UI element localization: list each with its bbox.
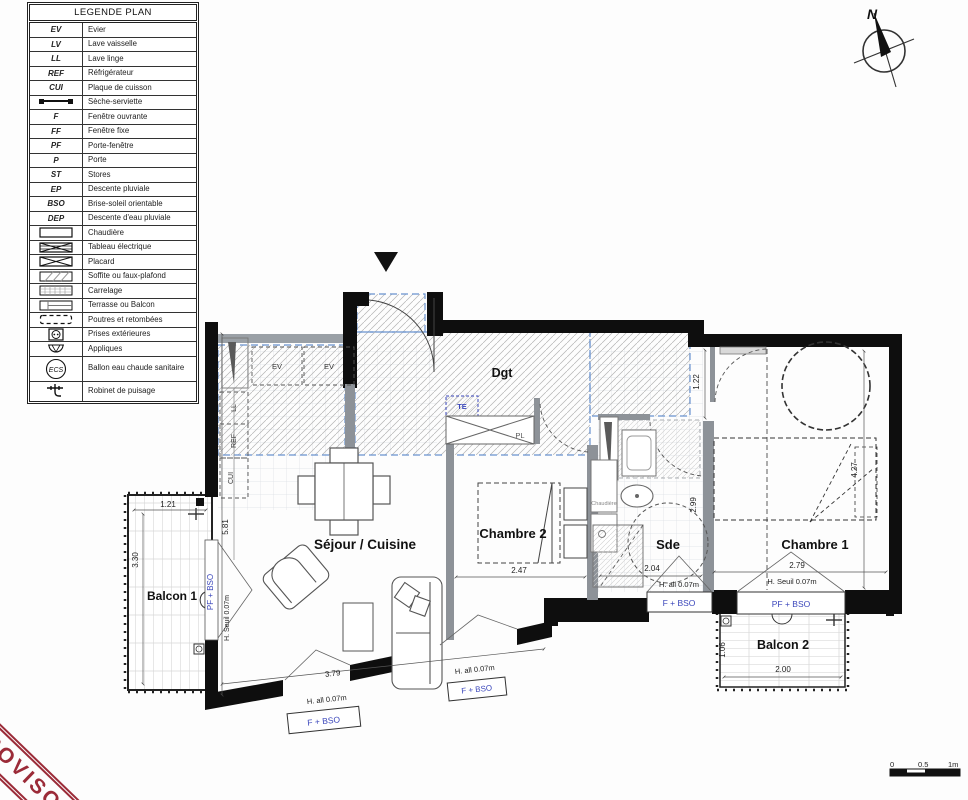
note-hall-3: H. all 0.07m	[659, 580, 699, 589]
north-arrow: N	[854, 6, 914, 87]
entrance-arrow-icon	[374, 252, 398, 272]
room-sde: Sde	[656, 537, 680, 552]
turning-circle	[782, 342, 870, 430]
dim-379: 3.79	[325, 668, 342, 679]
party-wall	[218, 334, 343, 343]
rainwater-pipe-icon	[196, 498, 204, 506]
dim-427: 4.27	[850, 462, 859, 478]
note-seuil-left: H. Seuil 0.07m	[224, 595, 231, 641]
label-ev1: EV	[272, 362, 282, 371]
room-balcon2: Balcon 2	[757, 638, 809, 652]
dim-299: 2.99	[689, 497, 698, 513]
note-seuil-ch1: H. Seuil 0.07m	[767, 577, 816, 586]
dim-106: 1.06	[718, 642, 727, 658]
sofa	[392, 577, 442, 689]
floor-plan-sheet: { "legend": { "title": "LEGENDE PLAN", "…	[0, 0, 968, 800]
dim-200: 2.00	[775, 665, 791, 674]
dim-247: 2.47	[511, 566, 527, 575]
room-dgt: Dgt	[492, 366, 514, 380]
coffee-table	[343, 603, 373, 651]
shower	[593, 525, 643, 587]
room-sejour: Séjour / Cuisine	[314, 537, 417, 552]
dim-204: 2.04	[644, 564, 660, 573]
room-chambre1: Chambre 1	[781, 537, 848, 552]
dim-279: 2.79	[789, 561, 805, 570]
label-te: TE	[457, 402, 467, 411]
note-hall-2: H. all 0.07m	[454, 663, 495, 676]
dim-330: 3.30	[131, 552, 140, 568]
scale-0: 0	[890, 760, 894, 769]
scale-05: 0.5	[918, 760, 928, 769]
room-balcon1: Balcon 1	[147, 589, 197, 603]
label-ll: LL	[231, 404, 238, 412]
room-chambre2: Chambre 2	[479, 526, 546, 541]
dim-122: 1.22	[692, 374, 701, 390]
north-label: N	[867, 6, 878, 22]
label-chaudiere: Chaudière	[591, 501, 616, 507]
label-ev2: EV	[324, 362, 334, 371]
dim-581: 5.81	[221, 519, 230, 535]
opening-fbso-3: F + BSO	[663, 598, 696, 608]
scale-bar: 0 0.5 1m	[890, 760, 960, 776]
floor-plan-drawing: Séjour / Cuisine Chambre 2 Chambre 1 Sde…	[0, 0, 968, 800]
bed-chambre2	[478, 483, 587, 563]
label-ref: REF	[231, 434, 238, 448]
opening-pfbso-left: PF + BSO	[206, 574, 215, 610]
label-pl: PL	[515, 431, 524, 440]
dim-121: 1.21	[160, 500, 176, 509]
opening-pfbso-ch1: PF + BSO	[772, 599, 811, 609]
label-cui: CUI	[228, 472, 235, 484]
note-hall-1: H. all 0.07m	[306, 693, 347, 706]
scale-1m: 1m	[948, 760, 958, 769]
